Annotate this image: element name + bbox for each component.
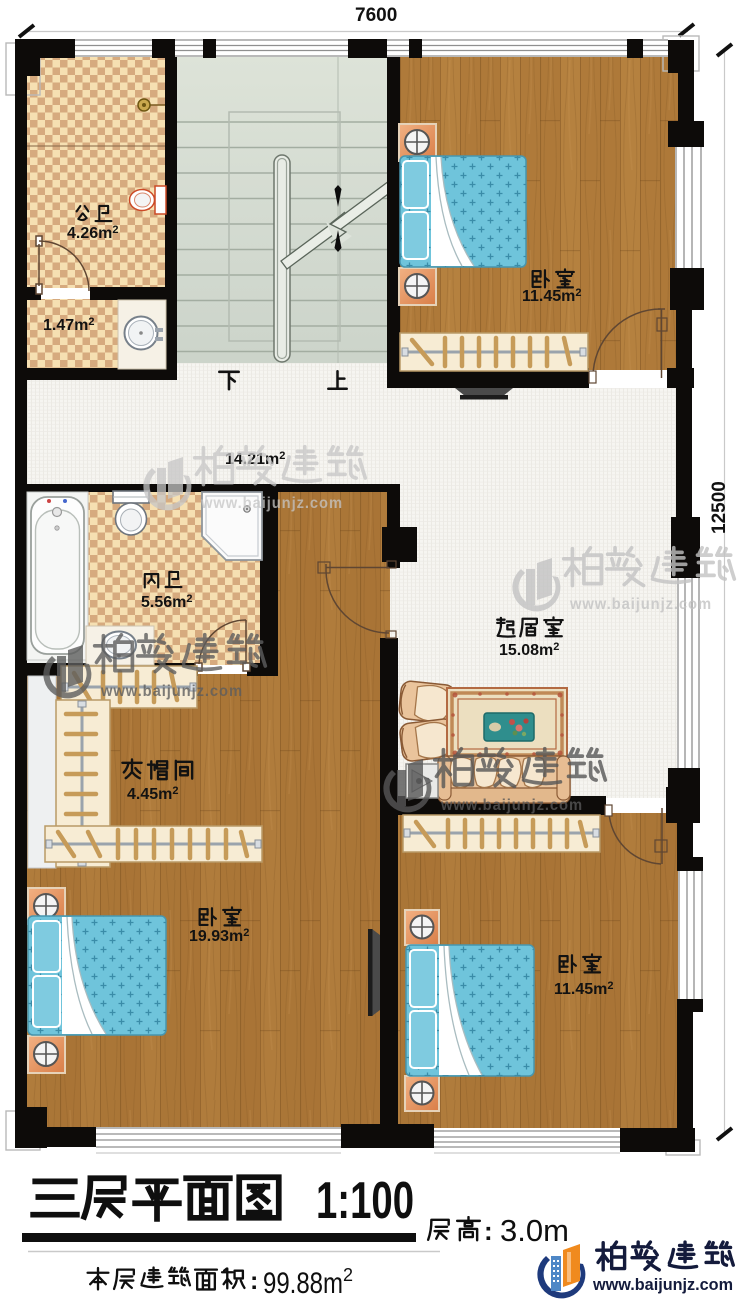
svg-text:5.56m2: 5.56m2 bbox=[141, 593, 193, 611]
svg-text:15.08m2: 15.08m2 bbox=[499, 641, 559, 659]
svg-text:11.45m2: 11.45m2 bbox=[554, 980, 614, 998]
svg-text:11.45m2: 11.45m2 bbox=[522, 287, 582, 305]
svg-text:4.45m2: 4.45m2 bbox=[127, 785, 179, 803]
svg-text:3.0m: 3.0m bbox=[500, 1213, 569, 1248]
svg-text:1:100: 1:100 bbox=[316, 1172, 414, 1230]
svg-text::: : bbox=[250, 1267, 258, 1295]
svg-text:19.93m2: 19.93m2 bbox=[189, 927, 249, 945]
svg-text:www.baijunjz.com: www.baijunjz.com bbox=[592, 1275, 733, 1294]
svg-text:99.88m: 99.88m bbox=[263, 1267, 343, 1300]
svg-text:12500: 12500 bbox=[709, 481, 730, 534]
svg-text::: : bbox=[484, 1216, 493, 1246]
svg-text:7600: 7600 bbox=[355, 5, 397, 26]
svg-text:2: 2 bbox=[343, 1265, 353, 1285]
svg-text:4.26m2: 4.26m2 bbox=[67, 224, 119, 242]
svg-text:1.47m2: 1.47m2 bbox=[43, 316, 95, 334]
